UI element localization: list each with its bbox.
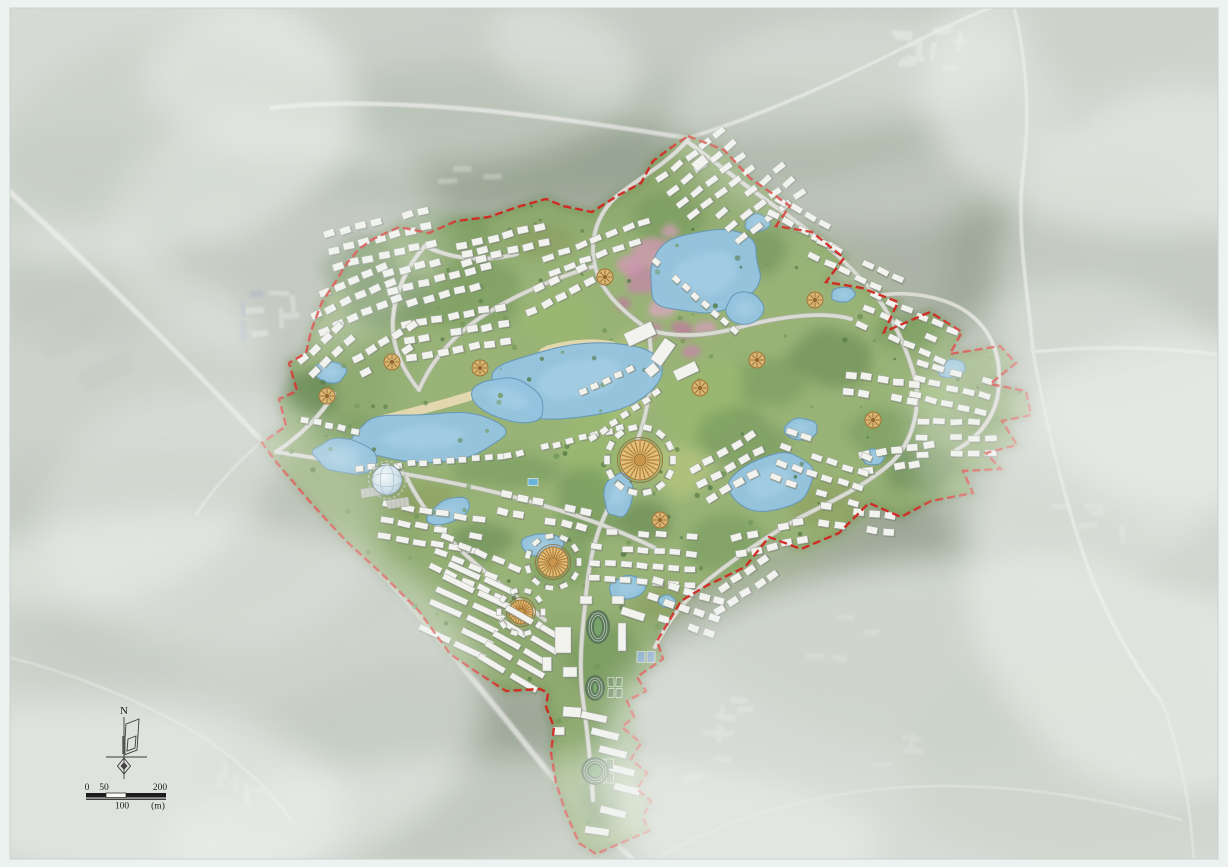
scale-unit: (m) — [151, 801, 165, 812]
scale-tick-200: 200 — [153, 783, 168, 793]
north-label: N — [120, 705, 128, 717]
scale-seg-100-200 — [126, 793, 166, 798]
masterplan-scene: N 0 50 200 100 (m) — [0, 0, 1228, 867]
scale-seg-0-50 — [86, 793, 106, 798]
haze-veil — [10, 8, 1218, 859]
scale-tick-0: 0 — [85, 783, 90, 793]
scale-seg-50-100 — [106, 793, 126, 798]
aerial-photo: N 0 50 200 100 (m) — [0, 0, 1228, 867]
scale-tick-50: 50 — [99, 783, 109, 793]
fog-layer — [0, 0, 1228, 867]
scale-tick-100: 100 — [115, 802, 130, 812]
rendering-page: N 0 50 200 100 (m) — [0, 0, 1228, 867]
north-arrow-bar — [122, 736, 125, 754]
scale-underline — [86, 799, 166, 800]
